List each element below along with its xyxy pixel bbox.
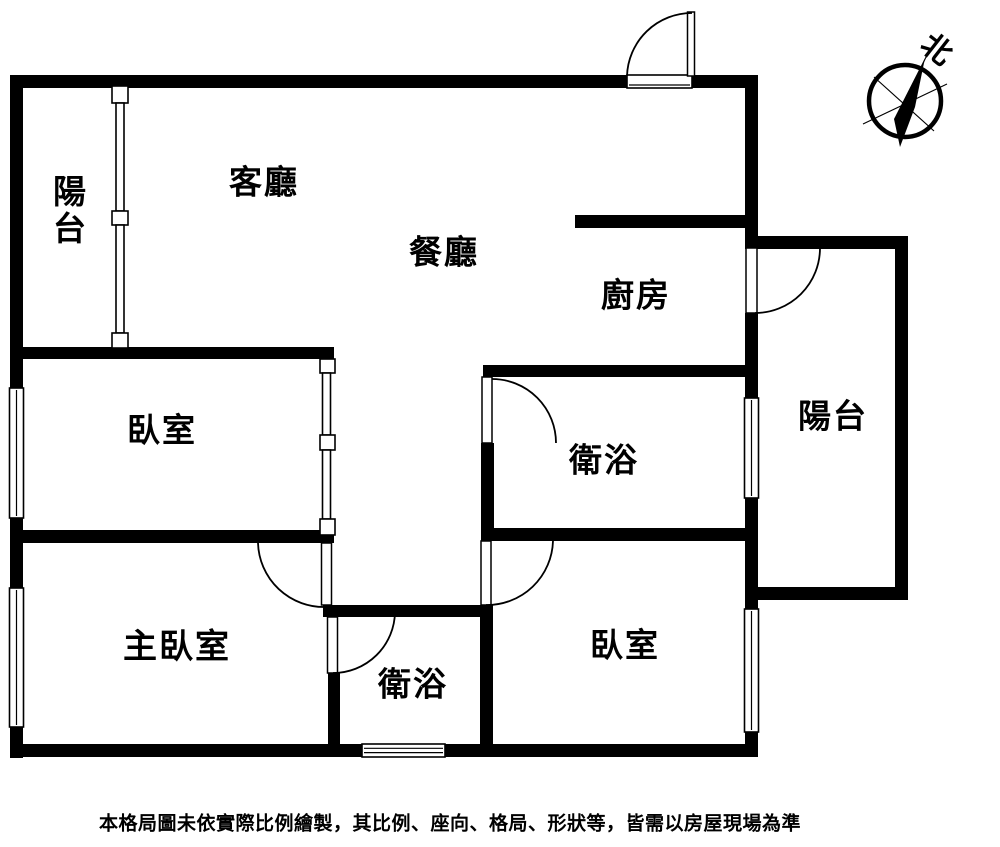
wall-bathroom-lower-top <box>323 605 493 617</box>
window-bedroom-right-east <box>745 609 759 732</box>
wall-left-middle <box>10 518 23 588</box>
window-bedroom-left-west <box>10 388 24 518</box>
window-bedroom-left-partition <box>320 359 335 535</box>
window-bathroom-lower-south <box>362 744 445 757</box>
bathroom-lower-door <box>328 612 396 673</box>
window-master-bedroom-west <box>10 588 24 727</box>
label-bedroom-left: 臥室 <box>127 414 197 447</box>
bedroom-right-door <box>481 541 553 605</box>
label-living-room: 客廳 <box>229 166 299 199</box>
label-master-bedroom: 主臥室 <box>123 630 231 664</box>
wall-right-lower <box>745 732 758 757</box>
disclaimer-text: 本格局圖未依實際比例繪製，其比例、座向、格局、形狀等，皆需以房屋現場為準 <box>99 809 801 836</box>
label-balcony-left: 陽台 <box>51 174 84 248</box>
master-bedroom-door <box>258 543 332 607</box>
bathroom-upper-door <box>482 377 556 443</box>
wall-bathroom-upper-bottom <box>481 528 758 541</box>
floor-plan: 陽台 客廳 餐廳 廚房 陽台 衛浴 臥室 主臥室 衛浴 臥室 北 本格局圖未依實… <box>0 0 1000 847</box>
window-bathroom-upper-east <box>745 398 759 498</box>
wall-bathroom-upper-top <box>483 365 758 377</box>
label-bedroom-right: 臥室 <box>590 629 660 662</box>
label-bathroom-upper: 衛浴 <box>569 444 639 477</box>
wall-balcony-right-outer <box>895 236 908 600</box>
wall-balcony-right-top <box>745 236 908 249</box>
label-kitchen: 廚房 <box>601 279 671 312</box>
wall-bedroom-left-top <box>10 347 334 359</box>
wall-bedroom-left-bottom <box>10 530 334 543</box>
wall-balcony-right-bottom <box>755 587 895 600</box>
wall-bathroom-lower-right <box>480 605 493 744</box>
label-balcony-right: 陽台 <box>798 400 868 433</box>
wall-kitchen-top <box>575 215 758 228</box>
wall-bathroom-upper-left <box>481 443 494 540</box>
wall-right-mid1 <box>745 313 758 398</box>
wall-left-upper <box>10 75 23 388</box>
wall-top-left <box>10 75 627 88</box>
wall-bathroom-lower-left <box>328 673 340 744</box>
label-bathroom-lower: 衛浴 <box>378 668 448 701</box>
window-balcony-left-partition <box>112 86 128 348</box>
label-dining-room: 餐廳 <box>409 236 479 269</box>
kitchen-balcony-door <box>746 248 820 313</box>
entrance-door <box>627 12 695 88</box>
